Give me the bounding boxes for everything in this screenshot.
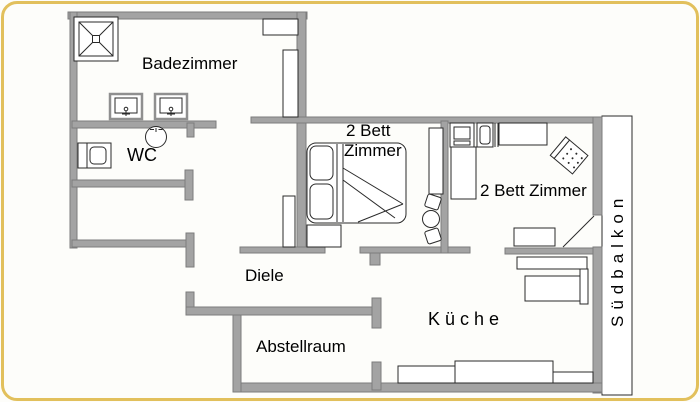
floor-plan: Badezimmer WC 2 Bett Zimmer 2 Bett Zimme… (0, 0, 700, 402)
wall-cap-abstellraum-bottom (372, 362, 381, 390)
label-bedroom-middle-line2: Zimmer (344, 142, 402, 161)
balcony-door-leaf (563, 216, 594, 247)
wall-stub-kueche (370, 253, 380, 265)
wall-cap-wc-bottom (185, 170, 193, 200)
wall-wc-bottom (72, 180, 186, 187)
door-leaf-corridor (283, 196, 295, 247)
wall-diele-top-left (240, 247, 325, 253)
washbasin-2 (155, 94, 187, 119)
wall-mid-vertical (297, 12, 306, 253)
label-wc: WC (127, 146, 157, 166)
label-kueche: Küche (428, 310, 504, 330)
label-bedroom-middle-line1: 2 Bett (346, 122, 390, 141)
wall-bedrooms-top (251, 117, 602, 123)
label-badezimmer: Badezimmer (142, 55, 237, 74)
wall-bedroom2-bottom (505, 248, 602, 254)
bath-door-leaf (283, 50, 298, 117)
wall-diele-top-right (360, 247, 470, 253)
wall-niche-bottom (72, 240, 186, 247)
bed-top (499, 123, 547, 145)
bed-left (451, 147, 476, 199)
door-leaf-bedroom1 (307, 225, 341, 247)
chair-1 (424, 194, 441, 211)
counter-right (553, 372, 593, 383)
wall-bottom (233, 383, 602, 392)
wall-right-upper (593, 117, 602, 215)
bench-top (517, 257, 587, 269)
washbasin-1 (110, 94, 142, 119)
shower (74, 17, 118, 61)
cot-chair (550, 137, 588, 174)
wall-abstellraum-left (233, 308, 241, 392)
cabinet-unit (450, 123, 474, 147)
bench-right (580, 269, 588, 304)
basin-unit (477, 123, 493, 147)
counter-middle (455, 361, 553, 383)
toilet (78, 143, 111, 168)
wall-cap-entry-top (186, 233, 194, 267)
bath-cabinet (263, 19, 298, 35)
chair-2 (424, 228, 441, 245)
floor-plan-drawing (0, 0, 700, 402)
wardrobe (429, 128, 443, 194)
wall-right-lower (593, 247, 602, 393)
label-suedbalkon: Südbalkon (604, 160, 632, 360)
label-abstellraum: Abstellraum (256, 338, 346, 357)
wall-diele-bottom (186, 307, 375, 315)
label-bedroom-right: 2 Bett Zimmer (480, 182, 587, 201)
shelf-lines (495, 123, 498, 147)
desk (514, 228, 555, 246)
small-table (423, 211, 440, 228)
label-diele: Diele (245, 267, 284, 286)
kitchen-table (525, 276, 580, 301)
counter-left (398, 366, 455, 383)
wall-cap-abstellraum-top (372, 298, 381, 328)
wall-cap-wc-top (187, 123, 194, 137)
